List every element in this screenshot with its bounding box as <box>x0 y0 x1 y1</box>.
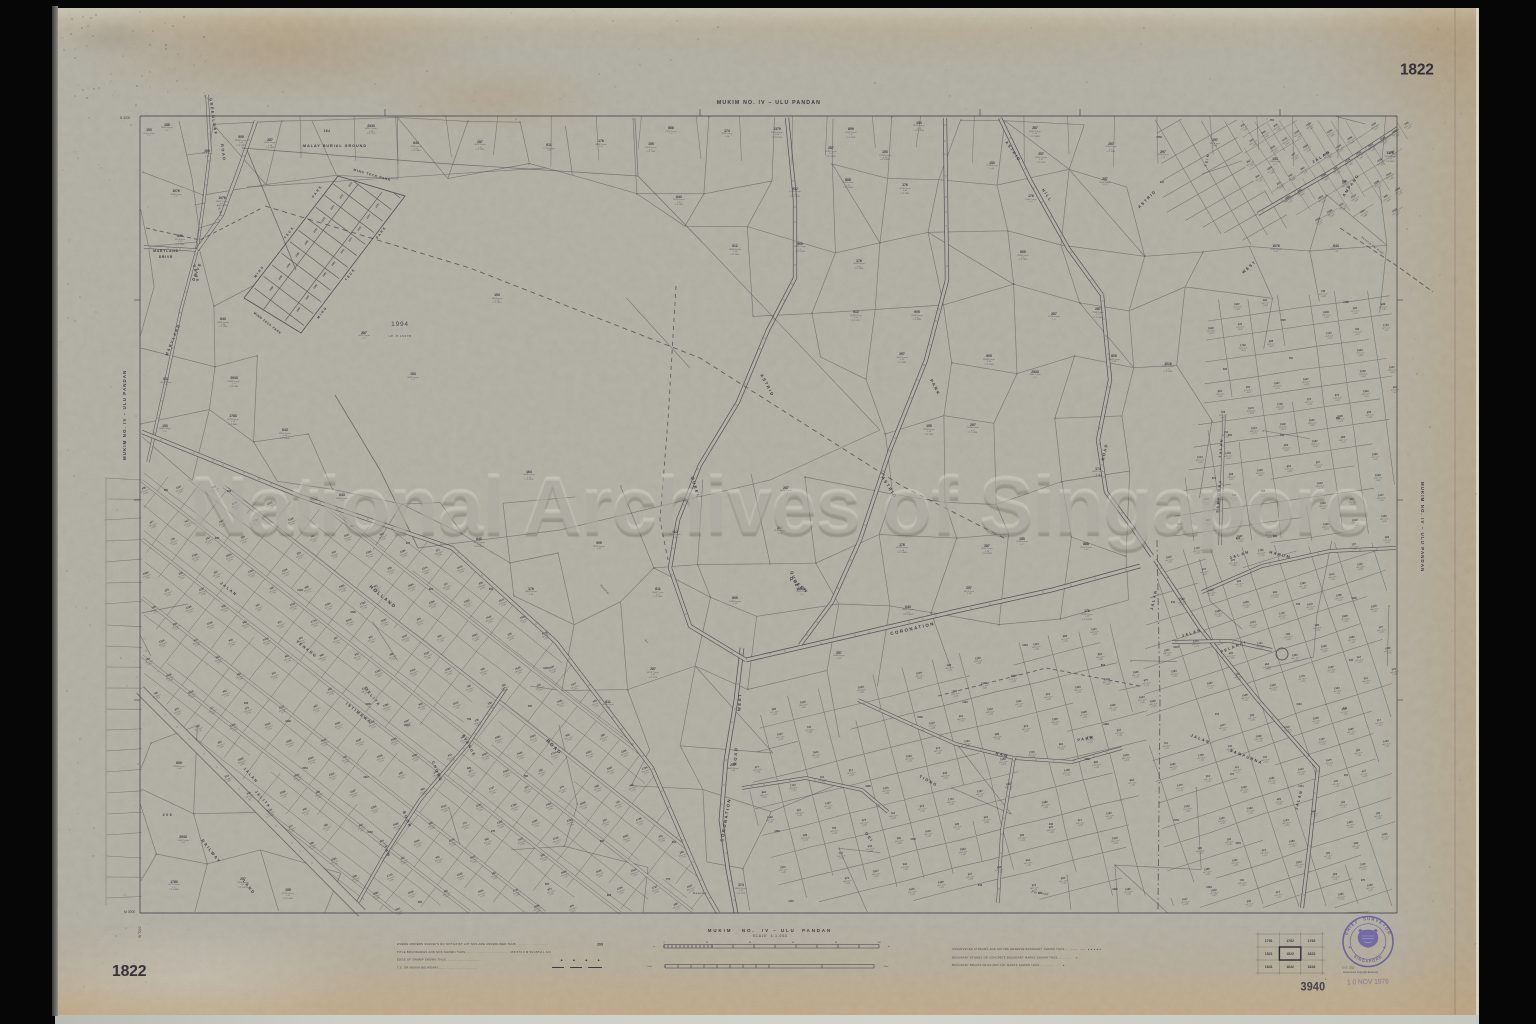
svg-text:C.P 3144: C.P 3144 <box>969 432 978 434</box>
svg-text:2933: 2933 <box>230 376 238 380</box>
svg-text:LP. P 15278: LP. P 15278 <box>389 334 412 338</box>
svg-text:176: 176 <box>598 139 604 143</box>
svg-text:899: 899 <box>177 234 183 238</box>
svg-text:1556: 1556 <box>1156 136 1162 139</box>
svg-text:WHERE MODERN SURVEYS DO NOT EX: WHERE MODERN SURVEYS DO NOT EXIST LOT NO… <box>397 942 548 946</box>
svg-text:1956.1 sq m: 1956.1 sq m <box>789 191 801 193</box>
svg-text:3125.5 sq m: 3125.5 sq m <box>913 125 925 127</box>
svg-text:436: 436 <box>1049 823 1054 826</box>
svg-text:899: 899 <box>732 596 738 600</box>
svg-text:1384: 1384 <box>774 830 780 833</box>
svg-text:8625.3 sq m: 8625.3 sq m <box>161 127 173 129</box>
svg-text:1821: 1821 <box>1265 952 1273 956</box>
svg-text:3809.2 sq m: 3809.2 sq m <box>602 704 614 706</box>
svg-text:C.P 9043: C.P 9043 <box>412 150 421 152</box>
svg-text:247: 247 <box>491 830 496 833</box>
svg-text:1994: 1994 <box>391 321 409 328</box>
svg-text:809: 809 <box>1111 354 1117 358</box>
svg-text:1 0 NOV 1976: 1 0 NOV 1976 <box>1347 978 1389 986</box>
svg-text:761: 761 <box>1270 119 1275 122</box>
svg-text:206: 206 <box>163 813 173 817</box>
svg-text:462: 462 <box>672 841 677 844</box>
svg-text:1985: 1985 <box>865 785 871 788</box>
svg-text:287: 287 <box>1095 307 1101 311</box>
svg-text:228: 228 <box>244 702 249 705</box>
svg-text:505: 505 <box>528 705 533 708</box>
svg-text:864: 864 <box>1101 664 1106 667</box>
svg-text:DRIVE: DRIVE <box>159 255 173 259</box>
svg-text:254: 254 <box>1344 774 1349 777</box>
svg-text:6831.3 sq m: 6831.3 sq m <box>365 128 377 130</box>
svg-text:1076: 1076 <box>172 189 180 193</box>
svg-text:643: 643 <box>978 884 983 887</box>
svg-text:C.P 5454: C.P 5454 <box>654 596 663 598</box>
svg-text:C.P 7183: C.P 7183 <box>647 151 656 153</box>
svg-text:C.P 7036: C.P 7036 <box>855 268 864 270</box>
svg-text:287: 287 <box>828 146 834 150</box>
svg-text:1560: 1560 <box>917 716 923 719</box>
svg-text:176: 176 <box>1084 609 1090 613</box>
svg-text:1822: 1822 <box>1286 952 1294 956</box>
svg-text:MUKIM NO. IV – ULU PANDAN: MUKIM NO. IV – ULU PANDAN <box>122 370 127 460</box>
svg-text:MARYLAND: MARYLAND <box>153 249 179 253</box>
svg-text:2755.0 sq m: 2755.0 sq m <box>1105 146 1117 148</box>
svg-text:C.P 12932: C.P 12932 <box>1082 619 1093 621</box>
svg-text:1689: 1689 <box>1084 758 1090 761</box>
svg-text:m: m <box>653 946 655 948</box>
svg-text:8689.7 sq m: 8689.7 sq m <box>902 609 914 611</box>
svg-text:999: 999 <box>607 894 612 897</box>
svg-text:275: 275 <box>1361 879 1366 882</box>
svg-text:1149: 1149 <box>1206 886 1212 889</box>
svg-text:C.P 4662: C.P 4662 <box>913 319 922 321</box>
svg-text:193: 193 <box>1342 180 1347 183</box>
svg-text:1552: 1552 <box>367 831 373 834</box>
svg-text:1763: 1763 <box>1308 939 1316 943</box>
svg-text:905: 905 <box>914 310 920 314</box>
svg-text:905: 905 <box>986 354 992 358</box>
svg-text:1352.5 sq m: 1352.5 sq m <box>1330 248 1342 250</box>
svg-text:1394: 1394 <box>1103 723 1109 726</box>
svg-text:C.P 2779: C.P 2779 <box>367 133 376 135</box>
svg-text:774: 774 <box>1230 773 1235 776</box>
svg-text:257: 257 <box>1038 152 1044 156</box>
svg-text:153: 153 <box>882 150 888 154</box>
svg-text:925: 925 <box>1160 181 1165 184</box>
svg-text:1841: 1841 <box>1265 965 1273 969</box>
svg-text:1151: 1151 <box>1298 785 1304 788</box>
svg-text:1515: 1515 <box>404 724 410 727</box>
svg-text:L.8111: L.8111 <box>1355 334 1360 336</box>
svg-text:2933: 2933 <box>179 835 187 839</box>
svg-text:1131: 1131 <box>1296 703 1302 706</box>
svg-text:912: 912 <box>853 310 859 314</box>
svg-text:1783: 1783 <box>229 414 237 418</box>
svg-text:UNSURVEYED STREAMS AND NATURE: UNSURVEYED STREAMS AND NATURE RESERVE BO… <box>952 947 1101 951</box>
svg-text:▲ ▲ ▲ ▲: ▲ ▲ ▲ ▲ <box>560 958 604 962</box>
svg-text:580: 580 <box>164 489 169 492</box>
svg-text:C.P 2481: C.P 2481 <box>901 193 910 195</box>
svg-text:733: 733 <box>1296 603 1301 606</box>
svg-text:689: 689 <box>1336 417 1341 420</box>
svg-text:1822: 1822 <box>112 963 147 980</box>
svg-text:9193.4 sq m: 9193.4 sq m <box>853 263 865 265</box>
svg-text:C.P 9020: C.P 9020 <box>731 254 740 256</box>
svg-text:585: 585 <box>524 775 529 778</box>
svg-text:643: 643 <box>220 317 226 321</box>
svg-text:BOUNDARY BRICKS NAILS AND CUT: BOUNDARY BRICKS NAILS AND CUT MARKS SHOW… <box>952 963 1065 967</box>
svg-text:C.P 3091: C.P 3091 <box>1107 151 1116 153</box>
svg-text:7415.5 sq m: 7415.5 sq m <box>1269 161 1281 163</box>
svg-text:C.P 4905: C.P 4905 <box>266 147 275 149</box>
svg-text:176: 176 <box>1028 194 1034 198</box>
svg-text:297: 297 <box>1212 138 1218 142</box>
svg-text:899: 899 <box>848 127 854 131</box>
svg-text:4641.3 sq m: 4641.3 sq m <box>474 144 486 146</box>
svg-text:Feet: Feet <box>884 965 889 968</box>
svg-text:1672: 1672 <box>1173 646 1179 649</box>
svg-text:1076: 1076 <box>218 196 226 200</box>
svg-text:C.P 13855: C.P 13855 <box>169 889 180 891</box>
svg-text:M 3000: M 3000 <box>124 910 135 914</box>
svg-text:888: 888 <box>668 126 674 130</box>
svg-text:809: 809 <box>1020 250 1026 254</box>
svg-text:153: 153 <box>146 128 152 132</box>
svg-text:1554: 1554 <box>302 767 308 770</box>
svg-text:8511.3 sq m: 8511.3 sq m <box>168 884 180 886</box>
svg-text:1120: 1120 <box>962 701 968 704</box>
svg-text:5959.2 sq m: 5959.2 sq m <box>721 133 733 135</box>
svg-text:C.P 13555: C.P 13555 <box>914 130 925 132</box>
svg-text:Government Copyright Reserved: Government Copyright Reserved <box>1343 971 1379 974</box>
svg-text:C.P 3087: C.P 3087 <box>898 362 907 364</box>
svg-text:SCALE 1:1,000: SCALE 1:1,000 <box>753 934 788 938</box>
svg-text:C.P 14027: C.P 14027 <box>880 159 891 161</box>
svg-text:C.P 5834: C.P 5834 <box>230 386 239 388</box>
svg-text:610: 610 <box>1228 434 1233 437</box>
svg-text:153: 153 <box>410 372 416 376</box>
svg-text:C.P 8660: C.P 8660 <box>229 424 238 426</box>
svg-text:956.7 sq m: 956.7 sq m <box>202 153 213 155</box>
svg-text:5547.0 sq m: 5547.0 sq m <box>794 246 806 248</box>
svg-text:257: 257 <box>1102 177 1108 181</box>
svg-text:287: 287 <box>1032 126 1038 130</box>
svg-text:153: 153 <box>494 293 500 297</box>
svg-text:MUKIM NO. IV – ULU PANDAN: MUKIM NO. IV – ULU PANDAN <box>717 100 821 106</box>
svg-text:C.P 11259: C.P 11259 <box>772 137 782 139</box>
svg-text:C.P 5198: C.P 5198 <box>1037 162 1046 164</box>
svg-text:297: 297 <box>966 586 972 590</box>
svg-text:3940: 3940 <box>1301 981 1326 993</box>
svg-text:762: 762 <box>1289 357 1294 360</box>
svg-text:1026: 1026 <box>543 667 549 670</box>
svg-text:1264: 1264 <box>1022 644 1028 647</box>
svg-text:9478.6 sq m: 9478.6 sq m <box>967 427 979 429</box>
svg-text:C.P 14405: C.P 14405 <box>1030 136 1041 138</box>
svg-text:905: 905 <box>238 135 244 139</box>
svg-text:2141.0 sq m: 2141.0 sq m <box>842 182 854 184</box>
svg-text:C.P 4473: C.P 4473 <box>493 302 502 304</box>
svg-text:365: 365 <box>418 901 423 904</box>
svg-text:1379: 1379 <box>1386 151 1394 155</box>
svg-text:T.S. OR MUKIM BOUNDARY........: T.S. OR MUKIM BOUNDARY......... ........… <box>397 966 477 970</box>
svg-text:C.P 5699: C.P 5699 <box>1164 371 1173 373</box>
svg-text:m: m <box>888 946 890 948</box>
svg-text:1553: 1553 <box>1173 819 1179 822</box>
svg-text:National Archives of Singapore: National Archives of Singapore <box>190 462 1370 552</box>
svg-text:Reserve: Reserve <box>693 891 707 895</box>
svg-text:C.P 10309: C.P 10309 <box>283 898 294 900</box>
svg-text:1293: 1293 <box>297 589 303 592</box>
svg-text:1823: 1823 <box>1308 952 1316 956</box>
svg-text:1725: 1725 <box>1280 319 1286 322</box>
svg-text:S.I.S. 2512: S.I.S. 2512 <box>1342 967 1355 970</box>
svg-text:Feet: Feet <box>648 965 653 968</box>
svg-text:811: 811 <box>546 143 552 147</box>
svg-text:176: 176 <box>902 183 908 187</box>
svg-text:MUKIM NO. IV – ULU PANDAN: MUKIM NO. IV – ULU PANDAN <box>708 928 832 933</box>
svg-text:BOUNDARY STONES OR CONCRETE BO: BOUNDARY STONES OR CONCRETE BOUNDARY MAR… <box>952 956 1078 960</box>
svg-text:C.P 1731: C.P 1731 <box>476 149 485 151</box>
svg-text:899: 899 <box>176 761 182 765</box>
svg-text:811: 811 <box>163 377 169 381</box>
svg-text:5598.9 sq m: 5598.9 sq m <box>1157 154 1169 156</box>
svg-text:1076: 1076 <box>1272 244 1280 248</box>
svg-text:912: 912 <box>732 244 738 248</box>
svg-text:MUKIM NO. IV – ULU PANDAN: MUKIM NO. IV – ULU PANDAN <box>1420 482 1425 572</box>
svg-text:1145: 1145 <box>788 900 794 903</box>
svg-text:N 3200: N 3200 <box>120 116 131 120</box>
svg-text:2129.5 sq m: 2129.5 sq m <box>1048 316 1060 318</box>
svg-text:155: 155 <box>285 888 291 892</box>
svg-text:EDGE OF SWAMP SHOWN THUS......: EDGE OF SWAMP SHOWN THUS................… <box>397 958 481 962</box>
svg-text:9184.7 sq m: 9184.7 sq m <box>1029 374 1041 376</box>
svg-text:C.P 7941: C.P 7941 <box>925 434 934 436</box>
svg-text:155: 155 <box>648 142 654 146</box>
svg-text:154: 154 <box>1215 713 1220 716</box>
svg-text:C.P 12441: C.P 12441 <box>843 187 854 189</box>
svg-text:1900: 1900 <box>1351 597 1357 600</box>
svg-text:MALAY BURIAL GROUND: MALAY BURIAL GROUND <box>303 144 367 148</box>
svg-text:643: 643 <box>282 428 288 432</box>
svg-text:495: 495 <box>1223 368 1228 371</box>
svg-text:C.P 3716: C.P 3716 <box>737 893 746 895</box>
svg-text:C.P 1272: C.P 1272 <box>852 320 861 322</box>
svg-text:449: 449 <box>1343 707 1348 710</box>
svg-text:174: 174 <box>738 883 744 887</box>
svg-text:TITLE BOUNDARIES AND NOS SHOWN: TITLE BOUNDARIES AND NOS SHOWN THUS.....… <box>397 950 551 954</box>
svg-text:1499: 1499 <box>285 720 291 723</box>
svg-text:C.P 13725: C.P 13725 <box>790 196 801 198</box>
svg-text:1979: 1979 <box>1235 842 1241 845</box>
svg-text:287: 287 <box>650 667 656 671</box>
svg-text:1761: 1761 <box>1265 939 1273 943</box>
svg-text:C.P 10854: C.P 10854 <box>903 614 914 616</box>
svg-text:C.P 9501: C.P 9501 <box>237 145 246 147</box>
svg-text:955: 955 <box>429 588 434 591</box>
svg-text:C.P 6918: C.P 6918 <box>847 137 856 139</box>
svg-text:C.P 5164: C.P 5164 <box>1094 317 1103 319</box>
svg-text:C.P 7963: C.P 7963 <box>219 326 228 328</box>
svg-text:3384.4 sq m: 3384.4 sq m <box>159 428 171 430</box>
svg-text:1890: 1890 <box>1112 888 1118 891</box>
svg-text:C.P 6499: C.P 6499 <box>1386 161 1395 163</box>
svg-text:C.P 9278: C.P 9278 <box>649 677 658 679</box>
svg-text:420: 420 <box>1349 659 1354 662</box>
svg-text:1762: 1762 <box>1286 939 1294 943</box>
svg-text:C.P 4007: C.P 4007 <box>675 204 684 206</box>
svg-text:•⋅: •⋅ <box>1325 977 1327 981</box>
svg-text:6299.7 sq m: 6299.7 sq m <box>1162 366 1174 368</box>
svg-text:155: 155 <box>926 424 932 428</box>
svg-text:776: 776 <box>666 878 671 881</box>
svg-text:C.P 14375: C.P 14375 <box>795 251 806 253</box>
svg-text:1843: 1843 <box>1308 965 1316 969</box>
svg-text:164: 164 <box>324 129 331 133</box>
svg-text:1006: 1006 <box>350 611 356 614</box>
svg-text:709: 709 <box>467 718 472 721</box>
svg-text:6750.8 sq m: 6750.8 sq m <box>673 199 685 201</box>
svg-text:5859.5 sq m: 5859.5 sq m <box>525 591 537 593</box>
svg-text:4549.1 sq m: 4549.1 sq m <box>264 142 276 144</box>
svg-text:C.P 3333: C.P 3333 <box>176 244 185 246</box>
svg-text:C.P 13412: C.P 13412 <box>280 438 291 440</box>
svg-text:1592: 1592 <box>910 838 916 841</box>
svg-text:220: 220 <box>467 767 472 770</box>
svg-text:355: 355 <box>489 588 494 591</box>
svg-text:C.P 11113: C.P 11113 <box>826 156 836 158</box>
svg-text:643: 643 <box>413 141 419 145</box>
svg-text:1327: 1327 <box>363 776 369 779</box>
svg-text:1379: 1379 <box>773 127 781 131</box>
svg-text:641: 641 <box>1171 601 1176 604</box>
svg-text:9020.9 sq m: 9020.9 sq m <box>833 655 845 657</box>
svg-text:800: 800 <box>600 840 605 843</box>
svg-text:297: 297 <box>899 352 905 356</box>
svg-text:1708: 1708 <box>1343 301 1349 304</box>
svg-text:7939.8 sq m: 7939.8 sq m <box>986 165 998 167</box>
svg-text:811: 811 <box>655 587 661 591</box>
svg-text:5439.7 sq m: 5439.7 sq m <box>358 335 370 337</box>
svg-text:701: 701 <box>1280 434 1285 437</box>
svg-text:W 7200: W 7200 <box>138 926 142 938</box>
svg-text:1822: 1822 <box>1400 62 1434 79</box>
svg-text:C.P 6706: C.P 6706 <box>985 364 994 366</box>
svg-text:597: 597 <box>545 883 550 886</box>
svg-text:1842: 1842 <box>1286 965 1294 969</box>
svg-text:1035: 1035 <box>365 703 371 706</box>
svg-text:C.P 7290: C.P 7290 <box>1019 259 1028 261</box>
svg-text:203: 203 <box>597 943 603 947</box>
